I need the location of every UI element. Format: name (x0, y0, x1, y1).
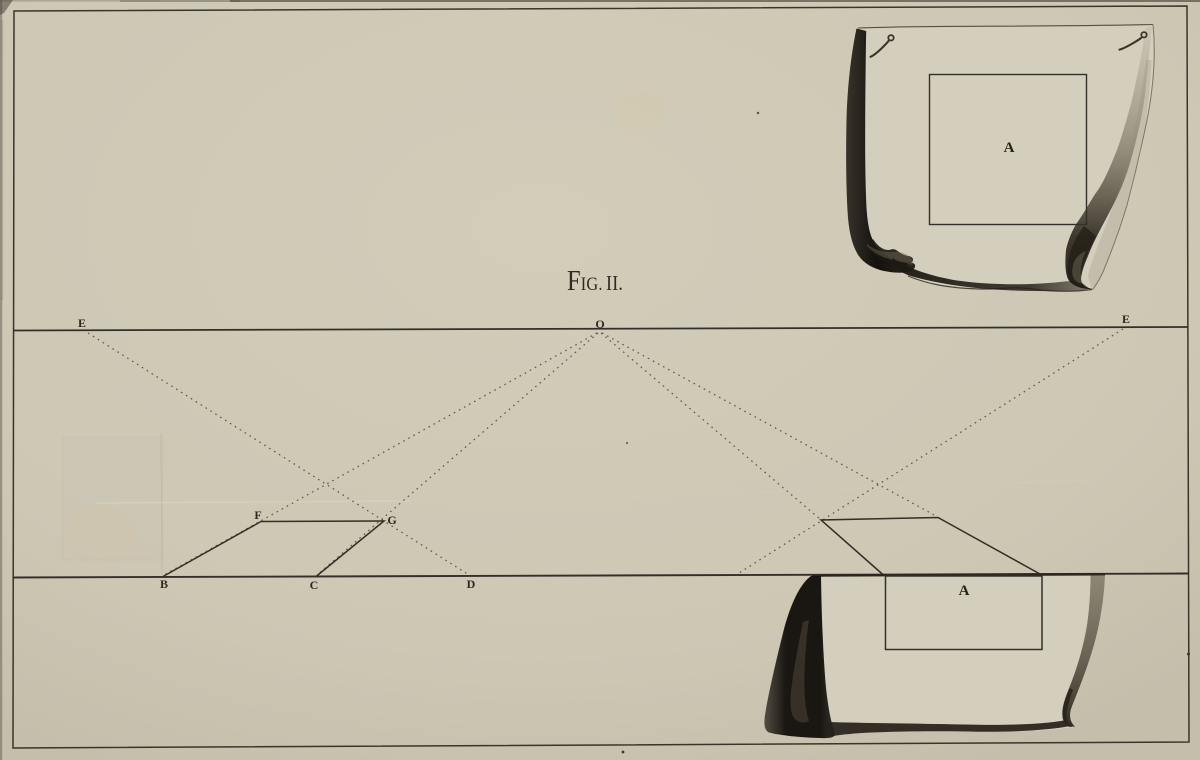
svg-text:E: E (1122, 312, 1130, 326)
svg-text:A: A (1004, 140, 1015, 156)
svg-text:E: E (78, 316, 86, 330)
svg-text:C: C (310, 578, 319, 592)
svg-text:A: A (959, 583, 970, 599)
svg-text:D: D (467, 577, 476, 591)
svg-text:B: B (160, 577, 168, 591)
svg-text:F: F (254, 508, 261, 522)
svg-text:G: G (387, 513, 396, 527)
svg-text:O: O (595, 317, 604, 331)
